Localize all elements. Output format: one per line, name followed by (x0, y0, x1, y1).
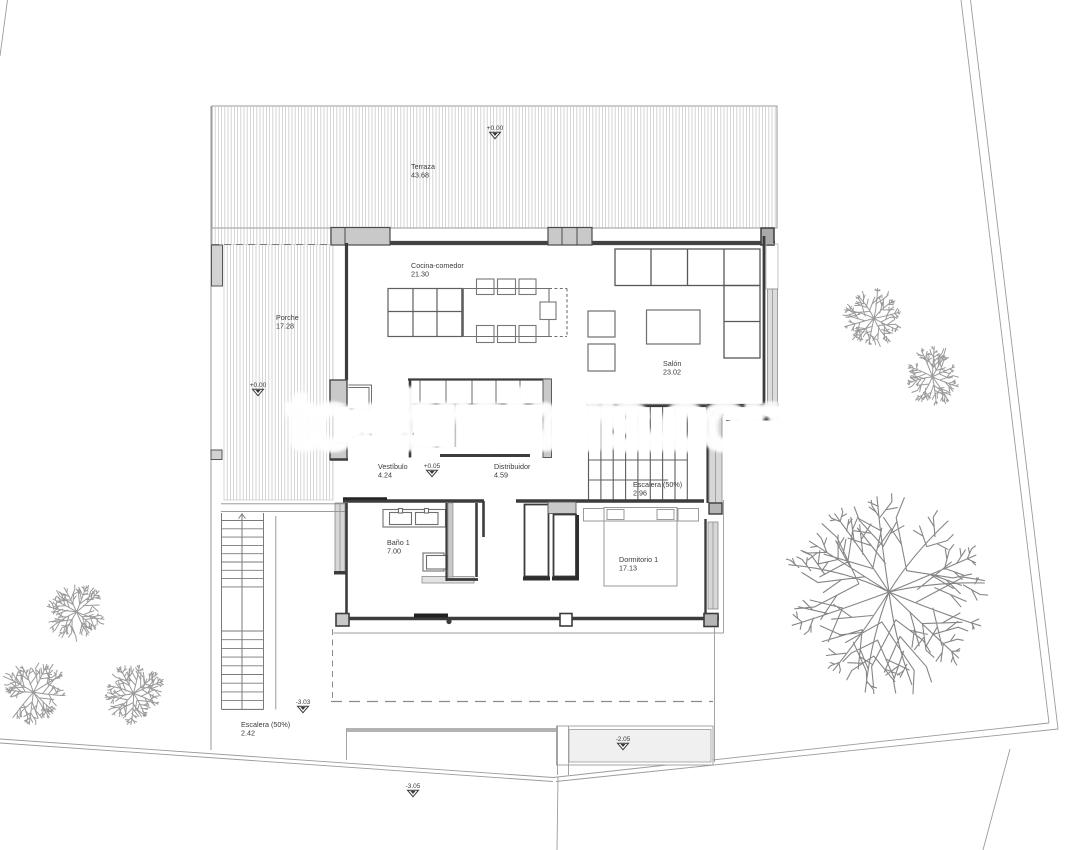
svg-text:topbrokers.com: topbrokers.com (287, 376, 809, 465)
svg-text:-3.03: -3.03 (296, 699, 311, 706)
svg-text:21.30: 21.30 (411, 270, 429, 279)
svg-text:43.68: 43.68 (411, 171, 429, 180)
svg-text:+0.00: +0.00 (487, 125, 504, 132)
svg-text:2.42: 2.42 (241, 729, 255, 738)
svg-text:-3.05: -3.05 (406, 783, 421, 790)
svg-text:-2.05: -2.05 (616, 736, 631, 743)
svg-text:17.28: 17.28 (276, 322, 294, 331)
svg-text:17.13: 17.13 (619, 564, 637, 573)
svg-text:2.96: 2.96 (633, 489, 647, 498)
svg-text:7.00: 7.00 (387, 547, 401, 556)
svg-text:+0.00: +0.00 (250, 382, 267, 389)
svg-text:4.59: 4.59 (494, 471, 508, 480)
svg-text:4.24: 4.24 (378, 471, 392, 480)
